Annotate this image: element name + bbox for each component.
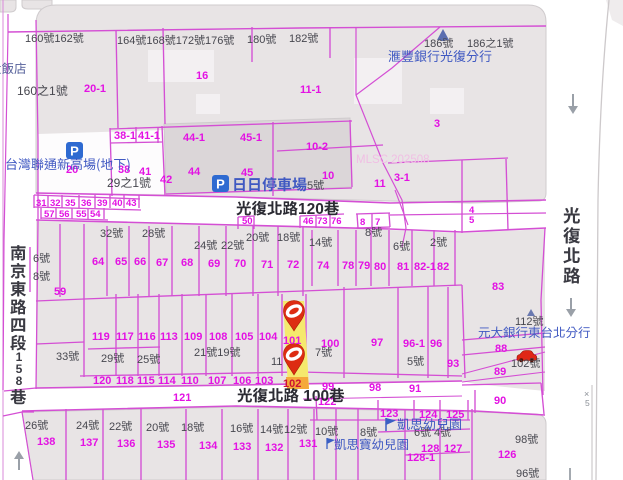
svg-text:P: P <box>216 177 225 192</box>
svg-text:96-1: 96-1 <box>403 335 425 351</box>
svg-text:137: 137 <box>80 434 98 450</box>
svg-text:光復北路120巷: 光復北路120巷 <box>236 197 340 219</box>
svg-text:光復北路 100巷: 光復北路 100巷 <box>237 384 345 406</box>
svg-text:120: 120 <box>93 372 111 388</box>
svg-text:54: 54 <box>90 206 101 220</box>
svg-text:20號: 20號 <box>146 419 169 435</box>
svg-text:89: 89 <box>494 363 506 379</box>
svg-text:123: 123 <box>380 405 398 421</box>
svg-text:97: 97 <box>371 334 383 350</box>
svg-text:164號168號172號176號: 164號168號172號176號 <box>117 32 234 48</box>
svg-text:64: 64 <box>92 253 105 269</box>
svg-text:44-1: 44-1 <box>183 129 205 145</box>
svg-text:82-1: 82-1 <box>414 258 436 274</box>
svg-text:11: 11 <box>271 353 282 369</box>
svg-text:21號19號: 21號19號 <box>194 344 240 360</box>
svg-text:11-1: 11-1 <box>300 81 321 97</box>
svg-text:26號: 26號 <box>25 417 48 433</box>
svg-text:25號: 25號 <box>137 351 160 367</box>
svg-text:128-1: 128-1 <box>407 449 435 465</box>
svg-text:16: 16 <box>196 67 208 83</box>
svg-text:22號: 22號 <box>221 237 244 253</box>
svg-text:93: 93 <box>447 355 459 371</box>
svg-text:121: 121 <box>173 389 191 405</box>
svg-text:82: 82 <box>437 258 449 274</box>
svg-text:56: 56 <box>59 206 70 220</box>
svg-text:115: 115 <box>137 372 155 388</box>
svg-text:118: 118 <box>116 372 134 388</box>
svg-text:凱思寶幼兒園: 凱思寶幼兒園 <box>334 434 409 453</box>
svg-text:18號: 18號 <box>181 419 204 435</box>
svg-text:108: 108 <box>209 328 227 344</box>
svg-text:40: 40 <box>112 195 123 209</box>
svg-text:67: 67 <box>156 254 168 270</box>
svg-text:78: 78 <box>342 257 354 273</box>
svg-text:133: 133 <box>233 438 251 454</box>
svg-text:69: 69 <box>208 255 220 271</box>
svg-text:28號: 28號 <box>142 225 165 241</box>
svg-text:10-2: 10-2 <box>306 138 328 154</box>
svg-text:29號: 29號 <box>101 350 124 366</box>
svg-text:5: 5 <box>469 212 475 226</box>
svg-text:18號: 18號 <box>277 229 300 245</box>
svg-text:滙豐銀行光復分行: 滙豐銀行光復分行 <box>388 46 492 65</box>
svg-text:32號: 32號 <box>100 225 123 241</box>
svg-text:3: 3 <box>434 115 440 131</box>
svg-text:台灣聯通新高場(地下): 台灣聯通新高場(地下) <box>5 154 131 173</box>
svg-text:127: 127 <box>444 440 462 456</box>
svg-text:10: 10 <box>322 167 334 183</box>
svg-text:131: 131 <box>299 435 317 451</box>
svg-text:路: 路 <box>563 263 581 288</box>
svg-text:70: 70 <box>234 255 246 271</box>
svg-text:凱思幼兒園: 凱思幼兒園 <box>397 414 462 433</box>
svg-text:119: 119 <box>92 328 110 344</box>
svg-text:98: 98 <box>369 379 381 395</box>
svg-text:182號: 182號 <box>289 30 318 46</box>
svg-text:114: 114 <box>158 372 177 388</box>
svg-text:20-1: 20-1 <box>84 80 106 96</box>
svg-text:6號: 6號 <box>393 238 410 254</box>
svg-text:160號162號: 160號162號 <box>25 30 84 46</box>
svg-text:104: 104 <box>259 328 278 344</box>
svg-text:44: 44 <box>188 163 201 179</box>
svg-text:88: 88 <box>495 340 507 356</box>
svg-text:96號: 96號 <box>516 465 539 480</box>
svg-text:巷: 巷 <box>10 384 27 408</box>
svg-text:41: 41 <box>139 163 151 179</box>
svg-text:38-1: 38-1 <box>114 127 136 143</box>
svg-text:135: 135 <box>157 436 175 452</box>
svg-text:7: 7 <box>375 214 380 228</box>
svg-text:24號: 24號 <box>194 237 217 253</box>
svg-text:109: 109 <box>184 328 202 344</box>
svg-text:20號: 20號 <box>246 229 269 245</box>
svg-text:14號: 14號 <box>260 421 283 437</box>
svg-text:98號: 98號 <box>515 431 538 447</box>
svg-text:102號: 102號 <box>511 355 540 371</box>
svg-text:107: 107 <box>208 372 226 388</box>
svg-text:105: 105 <box>235 328 253 344</box>
svg-text:110: 110 <box>181 372 199 388</box>
svg-text:72: 72 <box>287 256 299 272</box>
svg-text:117: 117 <box>116 328 134 344</box>
svg-text:MLSC 202508: MLSC 202508 <box>356 151 430 167</box>
svg-text:81: 81 <box>397 258 409 274</box>
svg-text:80: 80 <box>374 258 386 274</box>
svg-text:116: 116 <box>138 328 156 344</box>
svg-text:55: 55 <box>76 206 87 220</box>
svg-text:24號: 24號 <box>76 417 99 433</box>
svg-text:6號: 6號 <box>33 250 50 266</box>
svg-text:96: 96 <box>430 335 442 351</box>
svg-text:65: 65 <box>115 253 127 269</box>
svg-text:180號: 180號 <box>247 31 276 47</box>
svg-text:138: 138 <box>37 433 55 449</box>
svg-text:132: 132 <box>265 439 283 455</box>
svg-text:134: 134 <box>199 437 218 453</box>
svg-text:5號: 5號 <box>407 353 424 369</box>
svg-text:59: 59 <box>54 283 66 299</box>
svg-text:日日停車場: 日日停車場 <box>232 174 307 195</box>
svg-text:2號: 2號 <box>430 234 447 250</box>
svg-text:43: 43 <box>126 195 137 209</box>
svg-text:11: 11 <box>374 175 386 191</box>
svg-text:91: 91 <box>409 380 421 396</box>
svg-text:41-1: 41-1 <box>138 127 160 143</box>
svg-text:22號: 22號 <box>109 418 132 434</box>
svg-text:16號: 16號 <box>230 420 253 436</box>
svg-text:83: 83 <box>492 278 504 294</box>
svg-text:33號: 33號 <box>56 348 79 364</box>
svg-text:元大銀行東台北分行: 元大銀行東台北分行 <box>478 322 591 341</box>
svg-text:5: 5 <box>585 397 590 409</box>
svg-text:101: 101 <box>283 332 301 348</box>
svg-text:3-1: 3-1 <box>394 169 410 185</box>
svg-text:42: 42 <box>160 171 172 187</box>
svg-text:90: 90 <box>494 392 506 408</box>
svg-text:57: 57 <box>44 206 55 220</box>
svg-text:71: 71 <box>261 256 273 272</box>
svg-text:136: 136 <box>117 435 135 451</box>
svg-text:126: 126 <box>498 446 516 462</box>
svg-text:8號: 8號 <box>33 268 50 284</box>
svg-text:66: 66 <box>134 253 146 269</box>
svg-text:100: 100 <box>321 335 339 351</box>
svg-text:160之1號: 160之1號 <box>17 82 68 99</box>
svg-text:79: 79 <box>358 257 370 273</box>
svg-text:74: 74 <box>317 257 330 273</box>
svg-text:45-1: 45-1 <box>240 129 262 145</box>
svg-text:68: 68 <box>181 254 193 270</box>
svg-text:8: 8 <box>360 214 365 228</box>
svg-text:113: 113 <box>160 328 178 344</box>
svg-text:大飯店: 大飯店 <box>0 58 27 77</box>
svg-text:14號: 14號 <box>309 234 332 250</box>
